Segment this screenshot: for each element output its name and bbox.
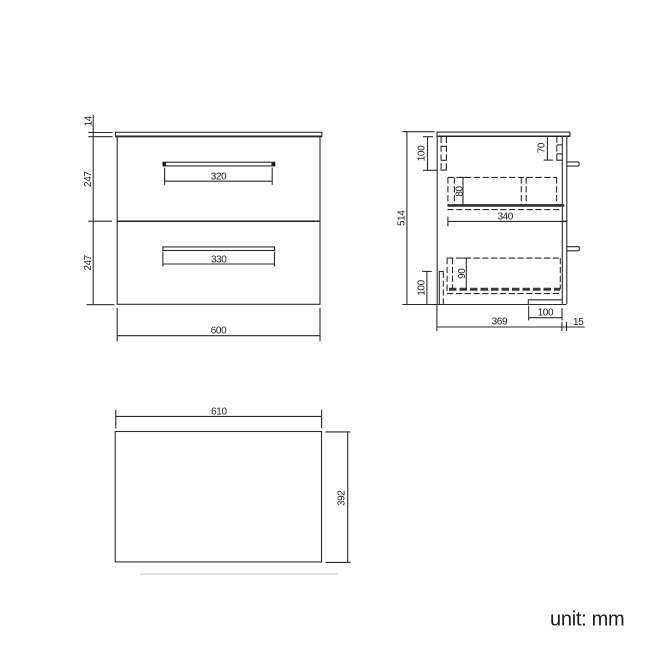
svg-text:70: 70 [537,142,548,153]
svg-text:100: 100 [417,145,428,161]
svg-text:100: 100 [416,279,427,295]
svg-text:514: 514 [396,210,407,226]
svg-text:90: 90 [457,268,468,279]
svg-text:15: 15 [573,317,584,328]
svg-text:392: 392 [337,490,348,506]
svg-text:100: 100 [538,308,554,319]
svg-text:unit: mm: unit: mm [550,609,624,631]
svg-text:14: 14 [84,115,95,126]
svg-text:247: 247 [83,171,94,187]
svg-text:330: 330 [211,254,227,265]
svg-text:600: 600 [211,325,227,336]
svg-text:320: 320 [211,172,227,183]
svg-text:80: 80 [454,186,465,197]
svg-text:247: 247 [83,254,94,270]
svg-text:369: 369 [492,317,508,328]
svg-text:340: 340 [497,212,513,223]
svg-text:610: 610 [211,407,227,418]
